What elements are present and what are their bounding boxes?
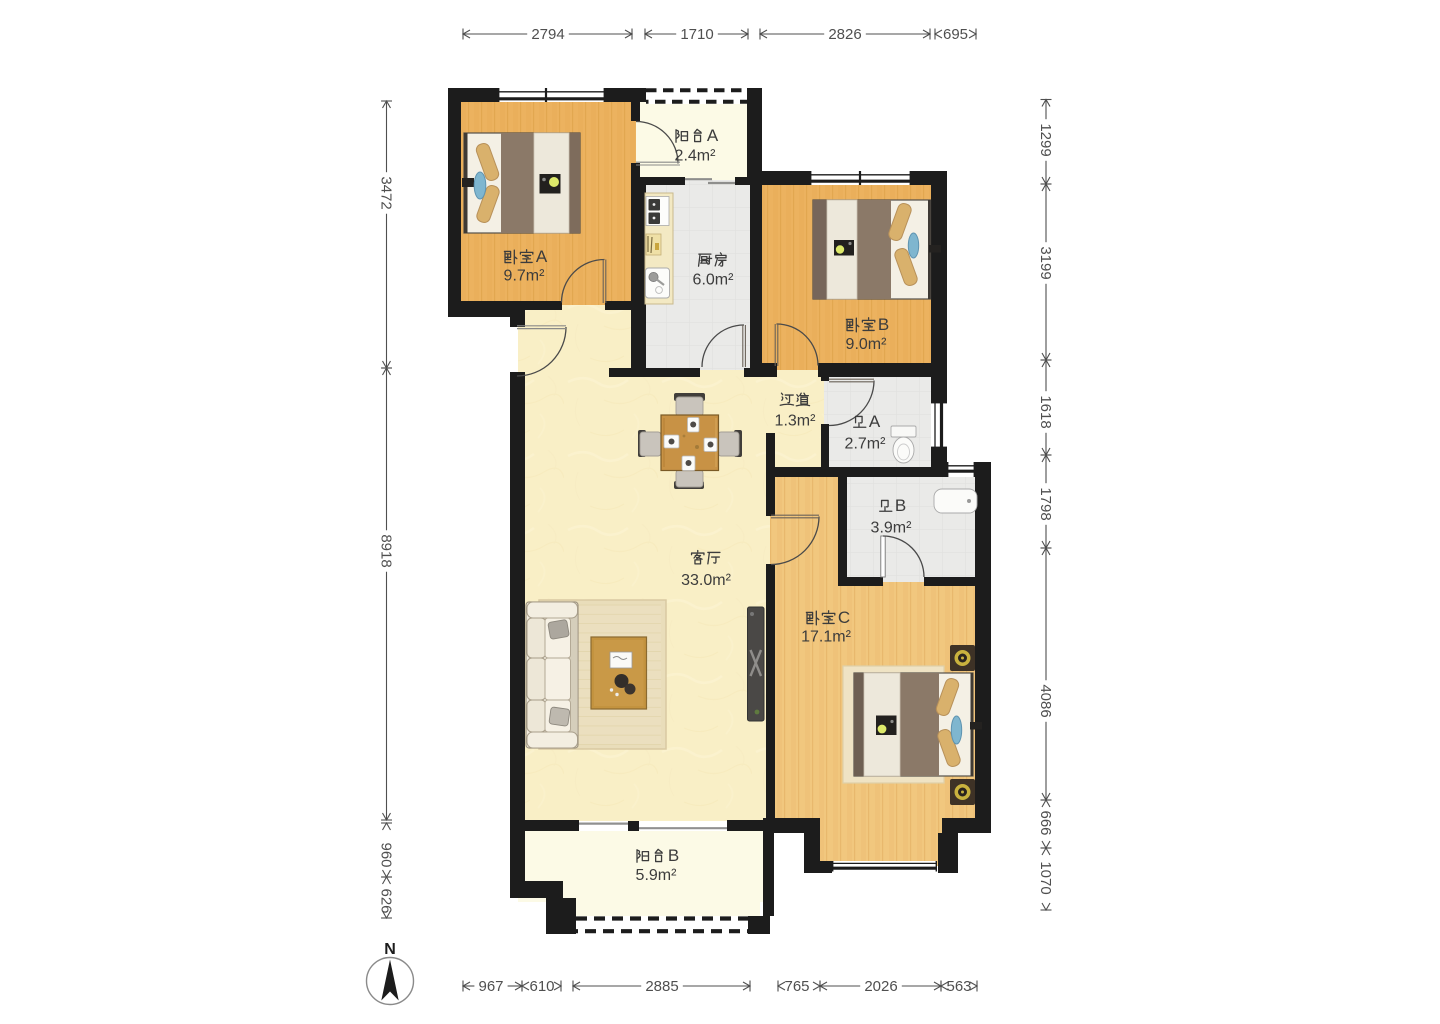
svg-text:1070: 1070	[1037, 861, 1054, 894]
svg-text:C: C	[838, 608, 850, 627]
svg-text:1710: 1710	[680, 26, 713, 43]
svg-text:695: 695	[943, 26, 968, 43]
svg-text:2.4m²: 2.4m²	[675, 148, 717, 165]
svg-text:563: 563	[946, 978, 971, 995]
svg-text:A: A	[707, 126, 719, 145]
svg-text:5.9m²: 5.9m²	[636, 867, 678, 884]
svg-text:626: 626	[378, 888, 395, 913]
svg-text:N: N	[384, 941, 396, 958]
svg-text:1.3m²: 1.3m²	[775, 413, 817, 430]
svg-text:9.7m²: 9.7m²	[504, 268, 546, 285]
svg-text:1299: 1299	[1037, 123, 1054, 156]
svg-text:967: 967	[478, 978, 503, 995]
svg-text:B: B	[878, 315, 889, 334]
svg-text:2885: 2885	[645, 978, 678, 995]
svg-text:2826: 2826	[828, 26, 861, 43]
svg-text:1798: 1798	[1037, 487, 1054, 520]
svg-text:9.0m²: 9.0m²	[846, 336, 888, 353]
svg-text:2026: 2026	[864, 978, 897, 995]
svg-text:A: A	[869, 412, 881, 431]
svg-text:1618: 1618	[1037, 395, 1054, 428]
svg-text:3199: 3199	[1037, 246, 1054, 279]
svg-text:3.9m²: 3.9m²	[871, 520, 913, 537]
svg-text:2794: 2794	[531, 26, 564, 43]
svg-text:2.7m²: 2.7m²	[845, 436, 887, 453]
svg-text:765: 765	[784, 978, 809, 995]
svg-text:6.0m²: 6.0m²	[693, 272, 735, 289]
svg-text:B: B	[895, 496, 906, 515]
svg-text:610: 610	[529, 978, 554, 995]
svg-text:33.0m²: 33.0m²	[681, 572, 731, 589]
svg-text:666: 666	[1037, 810, 1054, 835]
svg-text:17.1m²: 17.1m²	[801, 629, 851, 646]
svg-text:4086: 4086	[1037, 684, 1054, 717]
svg-text:8918: 8918	[378, 534, 395, 567]
svg-text:960: 960	[378, 842, 395, 867]
svg-text:B: B	[668, 846, 679, 865]
svg-text:3472: 3472	[378, 176, 395, 209]
svg-text:A: A	[536, 247, 548, 266]
